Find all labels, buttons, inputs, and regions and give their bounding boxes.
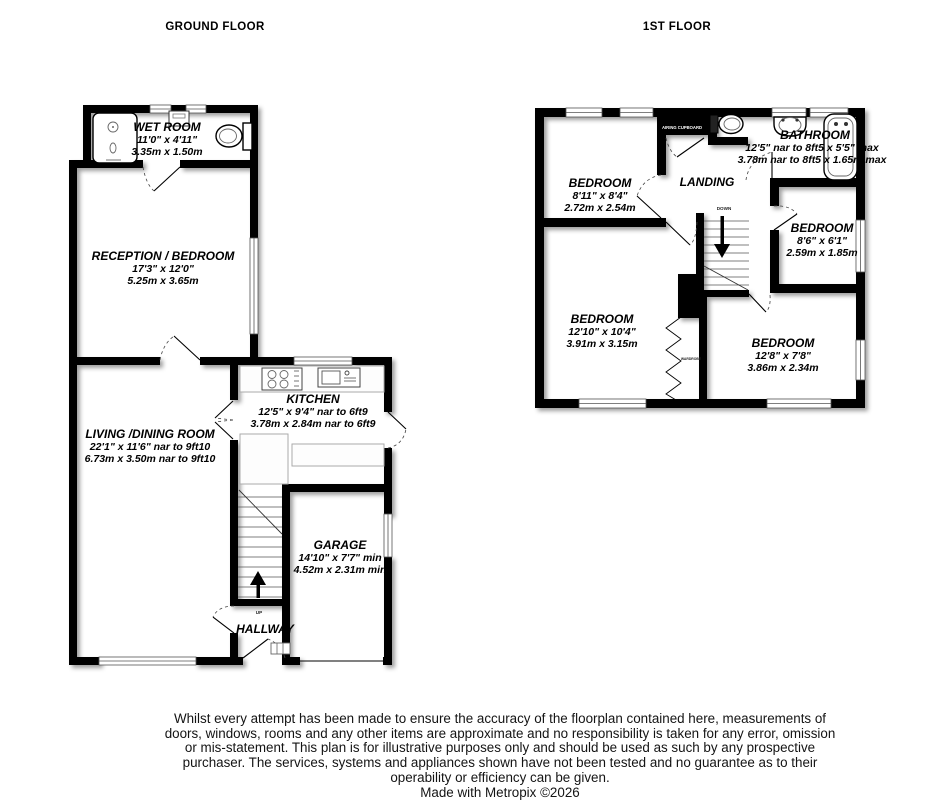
room-name: BEDROOM (571, 312, 635, 326)
window (99, 657, 196, 665)
window (384, 514, 392, 557)
room-dim-imperial: 22'1" x 11'6" nar to 9ft10 (89, 441, 211, 453)
airing-cupboard-label: AIRING CUPBOARD (662, 125, 702, 130)
room-name: GARAGE (314, 538, 368, 552)
room-dim-metric: 6.73m x 3.50m nar to 9ft10 (85, 453, 216, 465)
down-label: DOWN (717, 206, 732, 211)
room-dim-metric: 2.72m x 2.54m (563, 202, 635, 214)
room-dim-imperial: 12'5" x 9'4" nar to 6ft9 (258, 406, 368, 418)
room-dim-metric: 3.78m x 2.84m nar to 6ft9 (251, 418, 376, 430)
kitchen-counter (292, 444, 384, 466)
room-dim-imperial: 12'8" x 7'8" (755, 350, 812, 362)
window (150, 105, 171, 113)
room-dim-imperial: 14'10" x 7'7" min (298, 552, 381, 564)
staircase-down (704, 216, 749, 290)
floorplan-drawing: WET ROOM 11'0" x 4'11" 3.35m x 1.50m REC… (0, 0, 930, 806)
window (620, 108, 653, 117)
toilet-icon (710, 115, 743, 134)
room-name: BEDROOM (791, 221, 855, 235)
room-name: LIVING /DINING ROOM (85, 427, 215, 441)
front-doorstep (271, 643, 290, 654)
window (294, 357, 352, 365)
disclaimer-block: Whilst every attempt has been made to en… (160, 712, 840, 800)
wardrobe-label: WARDROBE (681, 357, 702, 361)
up-label: UP (256, 610, 262, 615)
credit-text: Made with Metropix ©2026 (160, 786, 840, 801)
window (566, 108, 602, 117)
hallway-label: HALLWAY (236, 622, 295, 636)
room-dim-metric: 3.78m nar to 8ft5 x 1.65m max (738, 154, 888, 166)
room-dim-metric: 3.35m x 1.50m (131, 146, 202, 158)
window (579, 399, 646, 408)
kitchen-counter (240, 434, 288, 484)
down-arrow-icon (721, 216, 725, 246)
room-dim-metric: 5.25m x 3.65m (127, 275, 198, 287)
room-name: RECEPTION / BEDROOM (92, 249, 236, 263)
room-dim-imperial: 12'5" nar to 8ft5 x 5'5" max (745, 142, 880, 154)
window (856, 340, 865, 380)
room-dim-imperial: 17'3" x 12'0" (132, 263, 195, 275)
wardrobe-doors (666, 317, 681, 403)
first-floor-plan: BEDROOM 8'11" x 8'4" 2.72m x 2.54m BATHR… (535, 108, 888, 408)
room-dim-imperial: 8'6" x 6'1" (797, 235, 848, 247)
room-name: BEDROOM (752, 336, 816, 350)
shower-icon (93, 113, 137, 163)
hob-icon (262, 368, 302, 390)
room-dim-metric: 3.91m x 3.15m (566, 338, 637, 350)
ground-floor-plan: WET ROOM 11'0" x 4'11" 3.35m x 1.50m REC… (69, 105, 406, 665)
room-dim-imperial: 11'0" x 4'11" (137, 134, 198, 146)
room-name: BEDROOM (569, 176, 633, 190)
kitchen-sink-icon (318, 368, 360, 387)
room-dim-metric: 4.52m x 2.31m min (293, 564, 387, 576)
window (767, 399, 831, 408)
window (250, 238, 258, 334)
room-dim-metric: 3.86m x 2.34m (747, 362, 818, 374)
room-dim-metric: 2.59m x 1.85m (785, 247, 857, 259)
window (856, 220, 865, 272)
room-name: WET ROOM (133, 120, 201, 134)
room-name: BATHROOM (780, 128, 851, 142)
window (772, 108, 806, 117)
disclaimer-text: Whilst every attempt has been made to en… (160, 712, 840, 786)
staircase-up (238, 490, 282, 598)
room-dim-imperial: 12'10" x 10'4" (568, 326, 637, 338)
landing-label: LANDING (680, 175, 735, 189)
floorplan-page: GROUND FLOOR 1ST FLOOR (0, 0, 930, 806)
room-dim-imperial: 8'11" x 8'4" (572, 190, 628, 202)
toilet-icon (216, 123, 252, 150)
room-name: KITCHEN (286, 392, 340, 406)
